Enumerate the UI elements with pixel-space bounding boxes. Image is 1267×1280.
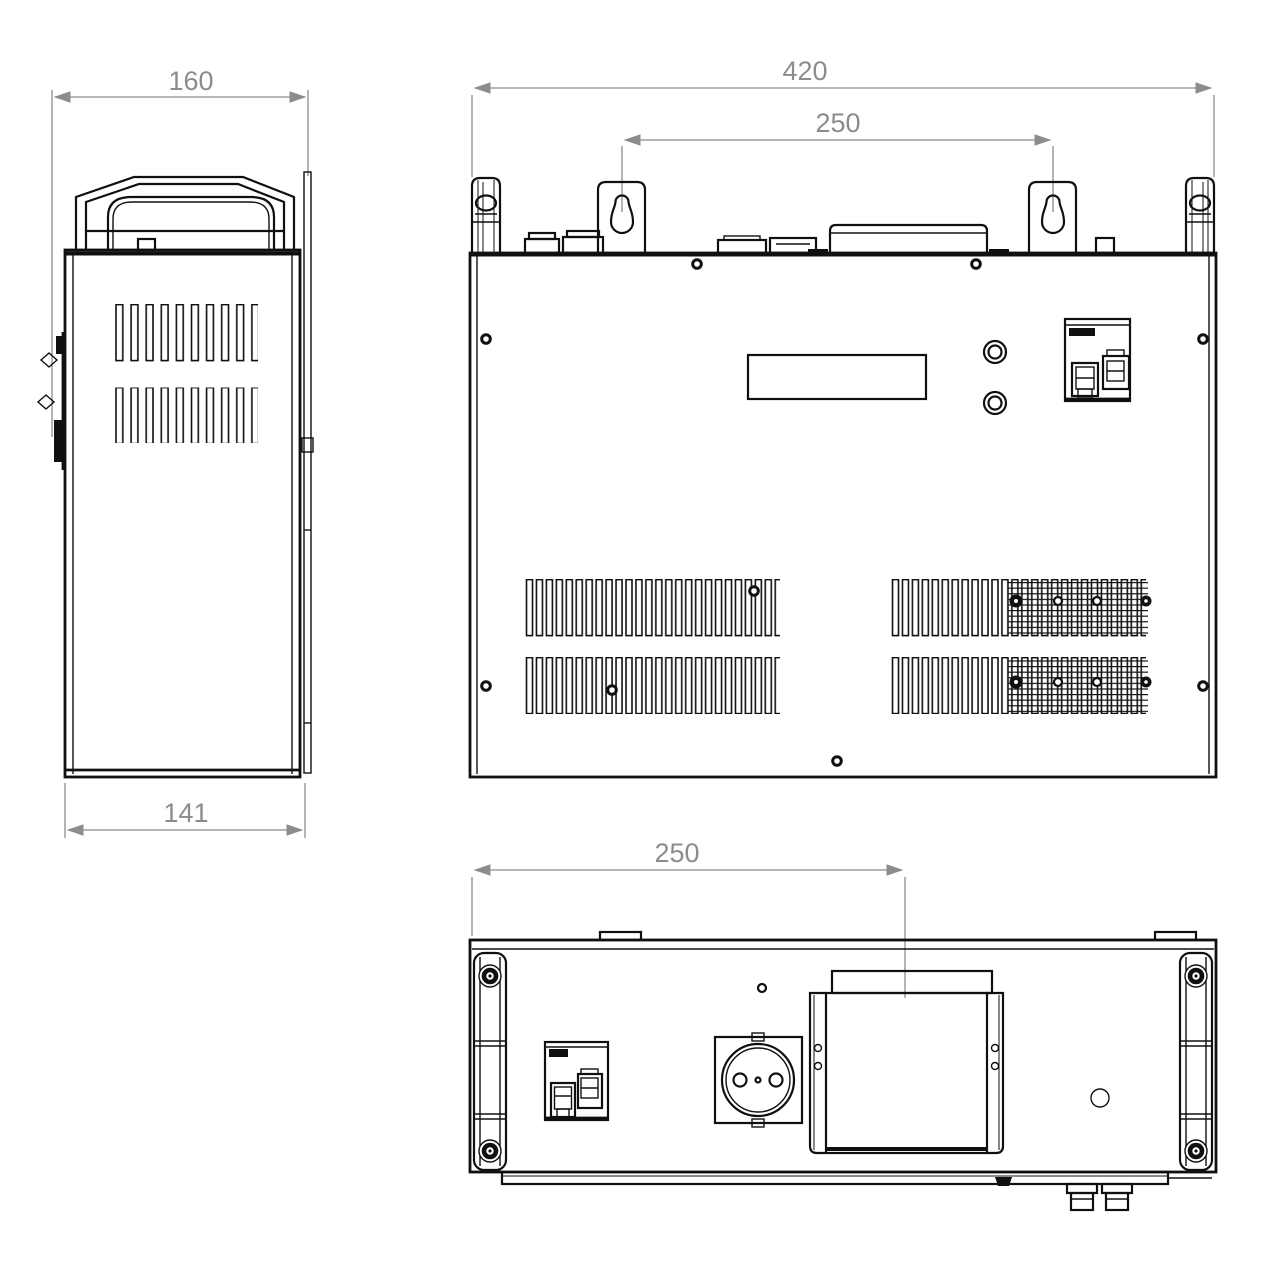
side-vent-slots (115, 304, 258, 443)
bracket-screw (479, 1140, 501, 1162)
bracket-screw (1185, 1140, 1207, 1162)
front-top-small-tab (1096, 238, 1114, 253)
front-handle-top-view (808, 225, 1009, 254)
power-socket (715, 1033, 802, 1127)
bottom-edge-strip (502, 1172, 1168, 1184)
socket-pin-hole-left (734, 1074, 747, 1087)
wing-screw-upper (41, 353, 57, 367)
side-wall-mount-plate (302, 172, 313, 773)
terminal-cover-lid (832, 971, 992, 993)
dimension-label-141: 141 (163, 798, 208, 828)
dimension-label-250-front: 250 (815, 108, 860, 138)
dimension-label-420: 420 (782, 56, 827, 86)
terminal-cover (810, 971, 1003, 1153)
bottom-connector-right (1102, 1184, 1132, 1210)
breaker-label-mark (549, 1049, 568, 1057)
front-top-connector-blocks (718, 236, 816, 253)
bottom-circuit-breaker (545, 1042, 608, 1120)
technical-drawing-canvas: 160 141 (0, 0, 1267, 1280)
control-button-upper (984, 341, 1006, 363)
terminal-cover-flange-right (987, 993, 1003, 1153)
bottom-dimension-offset: 250 (472, 838, 905, 998)
socket-center-pin (756, 1078, 761, 1083)
side-view: 160 141 (38, 66, 313, 838)
side-dimension-depth: 141 (65, 783, 305, 838)
bottom-enclosure-body (470, 932, 1216, 1184)
dimension-label-250-bottom: 250 (654, 838, 699, 868)
bracket-screw (479, 965, 501, 987)
front-circuit-breaker (1065, 319, 1130, 401)
control-button-lower (984, 392, 1006, 414)
front-view: 420 250 (470, 56, 1216, 777)
dimension-label-160: 160 (168, 66, 213, 96)
front-dimension-mount-spacing: 250 (622, 108, 1053, 212)
bottom-side-hole (1091, 1089, 1109, 1107)
bottom-small-hole (758, 984, 766, 992)
handle-base-tab (138, 239, 155, 250)
socket-pin-hole-right (770, 1074, 783, 1087)
front-vent-grille-left (525, 579, 780, 714)
front-end-bracket-right (1186, 178, 1214, 253)
side-carry-handle (76, 177, 294, 250)
front-top-terminals (525, 231, 603, 253)
bottom-corner-bracket-left (474, 953, 506, 1170)
bracket-hole-right (1190, 196, 1210, 211)
clip-tab-lower (54, 420, 64, 462)
bracket-hole-left (476, 196, 496, 211)
terminal-cover-flange-left (810, 993, 826, 1153)
display-window (748, 355, 926, 399)
bracket-screw (1185, 965, 1207, 987)
clip-tab-upper (56, 336, 64, 354)
bottom-connector-left (1067, 1184, 1097, 1210)
bottom-view: 250 (470, 838, 1216, 1210)
front-end-bracket-left (472, 178, 500, 253)
side-fastening-clips (38, 332, 64, 470)
bottom-corner-bracket-right (1180, 953, 1212, 1170)
breaker-label-mark (1069, 328, 1095, 336)
